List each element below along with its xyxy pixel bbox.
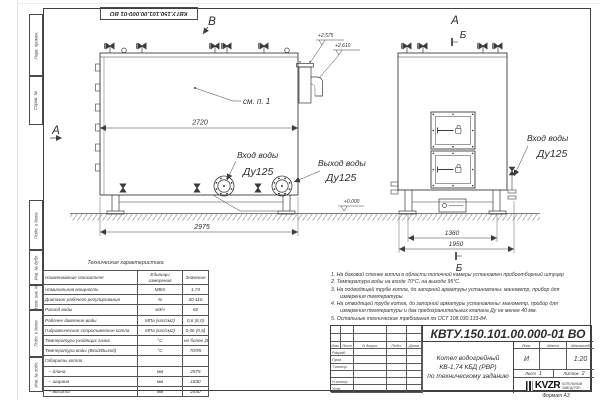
param-unit: мм	[138, 376, 183, 386]
param-value: 60	[183, 305, 209, 315]
empty-cell	[331, 334, 341, 342]
dim-support-span: 1360	[445, 230, 460, 237]
table-row: Диапазон рабочего регулирования%40-110	[44, 295, 209, 305]
logo-text: KVZR	[535, 380, 560, 391]
dim-overall-width: 1950	[449, 241, 464, 248]
scale-header: Масштаб	[567, 342, 594, 349]
org-line: ЗАВОД РЭП	[562, 386, 582, 390]
empty-cell	[354, 385, 387, 392]
elevation-zero: +0.000	[344, 199, 360, 205]
table-row: Рабочее давление водыМПа (кгс/см2)0,6 (6…	[44, 315, 209, 325]
technical-notes: 1. На боковой стенке котла в области топ…	[331, 272, 581, 323]
param-unit: мм	[138, 366, 183, 376]
param-value: 40-110	[183, 295, 209, 305]
param-name: Гидравлическое сопротивление котла	[44, 325, 138, 335]
col-header-value: Значение	[183, 271, 209, 285]
empty-cell	[341, 326, 354, 334]
param-unit: мм	[138, 386, 183, 396]
note-item: 5. Остальные технические требования по О…	[331, 316, 581, 323]
inlet-label: Вход воды	[237, 150, 279, 160]
view-label-v: В	[208, 16, 216, 28]
param-value: 2440	[183, 386, 209, 396]
elevation-marks	[310, 40, 364, 211]
outlet-dn-label: Ду125	[325, 172, 356, 184]
view-label-a-front: А	[450, 15, 459, 27]
top-valves-side	[105, 43, 290, 53]
boiler-front-view	[391, 38, 528, 260]
grid-col-header: Изм.	[331, 342, 341, 349]
signature-row-label: Н.контр.	[331, 378, 354, 385]
flue-outlet	[297, 61, 323, 103]
empty-cell	[387, 326, 407, 334]
param-value: 0,06 (0,6)	[183, 325, 209, 335]
empty-cell	[387, 356, 407, 363]
section-label-b-top: Б	[460, 30, 467, 41]
param-name: Температура уходящих газов	[44, 335, 138, 345]
table-row: Габариты котла	[44, 356, 209, 366]
sheet-label: Лист	[525, 371, 536, 376]
param-name: Температура воды (Вход/Выход)	[44, 346, 138, 356]
empty-cell	[387, 385, 407, 392]
param-unit: °С	[138, 335, 183, 345]
param-unit: °С	[138, 346, 183, 356]
table-row: – высотамм2440	[44, 386, 209, 396]
param-name: Номинальная мощность	[44, 285, 138, 295]
logo-bars-icon	[526, 381, 533, 391]
document-designation: КВТУ.150.101.00.000-01 ВО	[422, 326, 593, 342]
note-item: 1. На боковой стенке котла в области топ…	[331, 272, 581, 279]
side-supports	[107, 195, 295, 214]
inlet-front-dn-label: Ду125	[536, 148, 567, 160]
manufacturer-logo: KVZR КОТЕЛЬНЫЙ ЗАВОД РЭП	[514, 378, 594, 393]
grid-col-header: Лист	[341, 342, 354, 349]
param-value: не более 280	[183, 335, 209, 345]
param-unit: МВт	[138, 285, 183, 295]
signature-grid: Изм. Лист N докум. Подп. Дата Разраб. Пр…	[331, 326, 422, 393]
grid-col-header: Подп.	[387, 342, 407, 349]
param-value: 2975	[183, 366, 209, 376]
param-unit: м3/ч	[138, 305, 183, 315]
doc-name-line: Котел водогрейный	[437, 354, 500, 363]
elevation-2: +2.610	[335, 43, 351, 49]
empty-cell	[387, 378, 407, 385]
empty-cell	[387, 364, 407, 371]
see-item-note: см. п. 1	[243, 97, 270, 106]
lit-value: И	[514, 349, 540, 370]
dim-body-length: 2720	[191, 120, 208, 127]
signature-row-label	[331, 371, 354, 378]
table-row: Температура уходящих газов°Сне более 280	[44, 335, 209, 345]
param-unit: МПа (кгс/см2)	[138, 315, 183, 325]
note-item: 4. На отводящей трубе котла, до запорной…	[331, 301, 581, 316]
empty-cell	[354, 334, 387, 342]
mass-header: Масса	[540, 342, 567, 349]
doc-name-line: КВ-1,74 КБД (РВР)	[439, 363, 496, 372]
param-name: Расход воды	[44, 305, 138, 315]
empty-cell	[407, 371, 422, 378]
table-row: – длинамм2975	[44, 366, 209, 376]
param-name: – ширина	[44, 376, 138, 386]
empty-cell	[387, 349, 407, 356]
signature-row-label: Утв.	[331, 385, 354, 392]
format-label: Формат А3	[520, 393, 592, 399]
inlet-dn-label: Ду125	[242, 166, 273, 178]
param-name: Диапазон рабочего регулирования	[44, 295, 138, 305]
upper-furnace-door	[431, 112, 475, 149]
signature-row-label: Пров.	[331, 356, 354, 363]
tech-table-title: Техническая характеристика	[43, 260, 208, 266]
inlet-front-label: Вход воды	[527, 133, 569, 143]
param-value: 1,74	[183, 285, 209, 295]
outlet-label: Выход воды	[318, 158, 367, 168]
table-row: – ширинамм1830	[44, 376, 209, 386]
param-unit: МПа (кгс/см2)	[138, 325, 183, 335]
empty-cell	[407, 385, 422, 392]
scale-value: 1:20	[567, 349, 594, 370]
empty-cell	[354, 356, 387, 363]
empty-cell	[407, 364, 422, 371]
title-block: КВТУ.150.101.00.000-01 ВО Изм. Лист N до…	[330, 325, 592, 392]
side-stubs	[391, 167, 516, 199]
empty-cell	[354, 326, 387, 334]
empty-cell	[387, 334, 407, 342]
table-row: Гидравлическое сопротивление котлаМПа (к…	[44, 325, 209, 335]
param-value	[183, 356, 209, 366]
note-item: 3. На подводящей трубе котла, до запорно…	[331, 287, 581, 302]
empty-cell	[407, 326, 422, 334]
organization-name: КОТЕЛЬНЫЙ ЗАВОД РЭП	[562, 382, 582, 390]
signature-row-label: Т.контр.	[331, 364, 354, 371]
empty-cell	[387, 371, 407, 378]
param-name: Рабочее давление воды	[44, 315, 138, 325]
grid-col-header: Дата	[407, 342, 422, 349]
dim-overall-length: 2975	[193, 224, 210, 231]
doc-name-line: по техническому заданию	[427, 372, 508, 381]
empty-cell	[354, 371, 387, 378]
table-row: Расход водым3/ч60	[44, 305, 209, 315]
grid-col-header: N докум.	[354, 342, 387, 349]
param-name: – длина	[44, 366, 138, 376]
sheet-cell: Лист 1	[514, 370, 554, 378]
empty-cell	[407, 349, 422, 356]
burner-box	[439, 199, 466, 212]
front-supports	[399, 190, 506, 214]
sheets-cell: Листов 2	[554, 370, 594, 378]
empty-cell	[354, 378, 387, 385]
document-name: Котел водогрейный КВ-1,74 КБД (РВР) по т…	[422, 342, 513, 393]
lower-furnace-door	[431, 151, 475, 188]
param-value: 70/95	[183, 346, 209, 356]
table-row: Номинальная мощностьМВт1,74	[44, 285, 209, 295]
table-row: Температура воды (Вход/Выход)°С70/95	[44, 346, 209, 356]
lit-header: Лит.	[514, 342, 540, 349]
empty-cell	[354, 364, 387, 371]
side-wall-lugs	[96, 64, 101, 171]
sheet-value: 1	[539, 371, 542, 377]
ground-line	[70, 214, 540, 221]
empty-cell	[341, 334, 354, 342]
param-unit: %	[138, 295, 183, 305]
title-block-right: Лит. Масса Масштаб И 1:20 Лист 1 Листов …	[513, 342, 593, 393]
empty-cell	[354, 349, 387, 356]
elevation-1: +2.575	[318, 33, 334, 39]
boiler-side-view	[96, 40, 365, 236]
col-header-unit: Единицы измерения	[138, 271, 183, 285]
empty-cell	[331, 326, 341, 334]
sheets-value: 2	[582, 371, 585, 377]
view-arrows	[50, 27, 208, 138]
signature-row-label: Разраб.	[331, 349, 354, 356]
water-flanges	[120, 176, 292, 196]
param-value: 0,6 (6,0)	[183, 315, 209, 325]
col-header-name: Наименование показателя	[44, 271, 138, 285]
empty-cell	[407, 356, 422, 363]
param-value: 1830	[183, 376, 209, 386]
tech-table-header-row: Наименование показателя Единицы измерени…	[44, 271, 209, 285]
mass-value	[540, 349, 567, 370]
empty-cell	[407, 378, 422, 385]
tech-table: Наименование показателя Единицы измерени…	[43, 270, 209, 397]
view-label-a-side: А	[51, 125, 60, 137]
sheets-label: Листов	[563, 371, 578, 376]
drawing-sheet: Перв. примен. Справ. № Подп. и дата Инв.…	[0, 0, 600, 400]
param-unit	[138, 356, 183, 366]
param-name: Габариты котла	[44, 356, 138, 366]
see-item-leader	[194, 87, 241, 101]
empty-cell	[407, 334, 422, 342]
note-item: 2. Температура воды на входе 70°С, на вы…	[331, 279, 581, 286]
param-name: – высота	[44, 386, 138, 396]
